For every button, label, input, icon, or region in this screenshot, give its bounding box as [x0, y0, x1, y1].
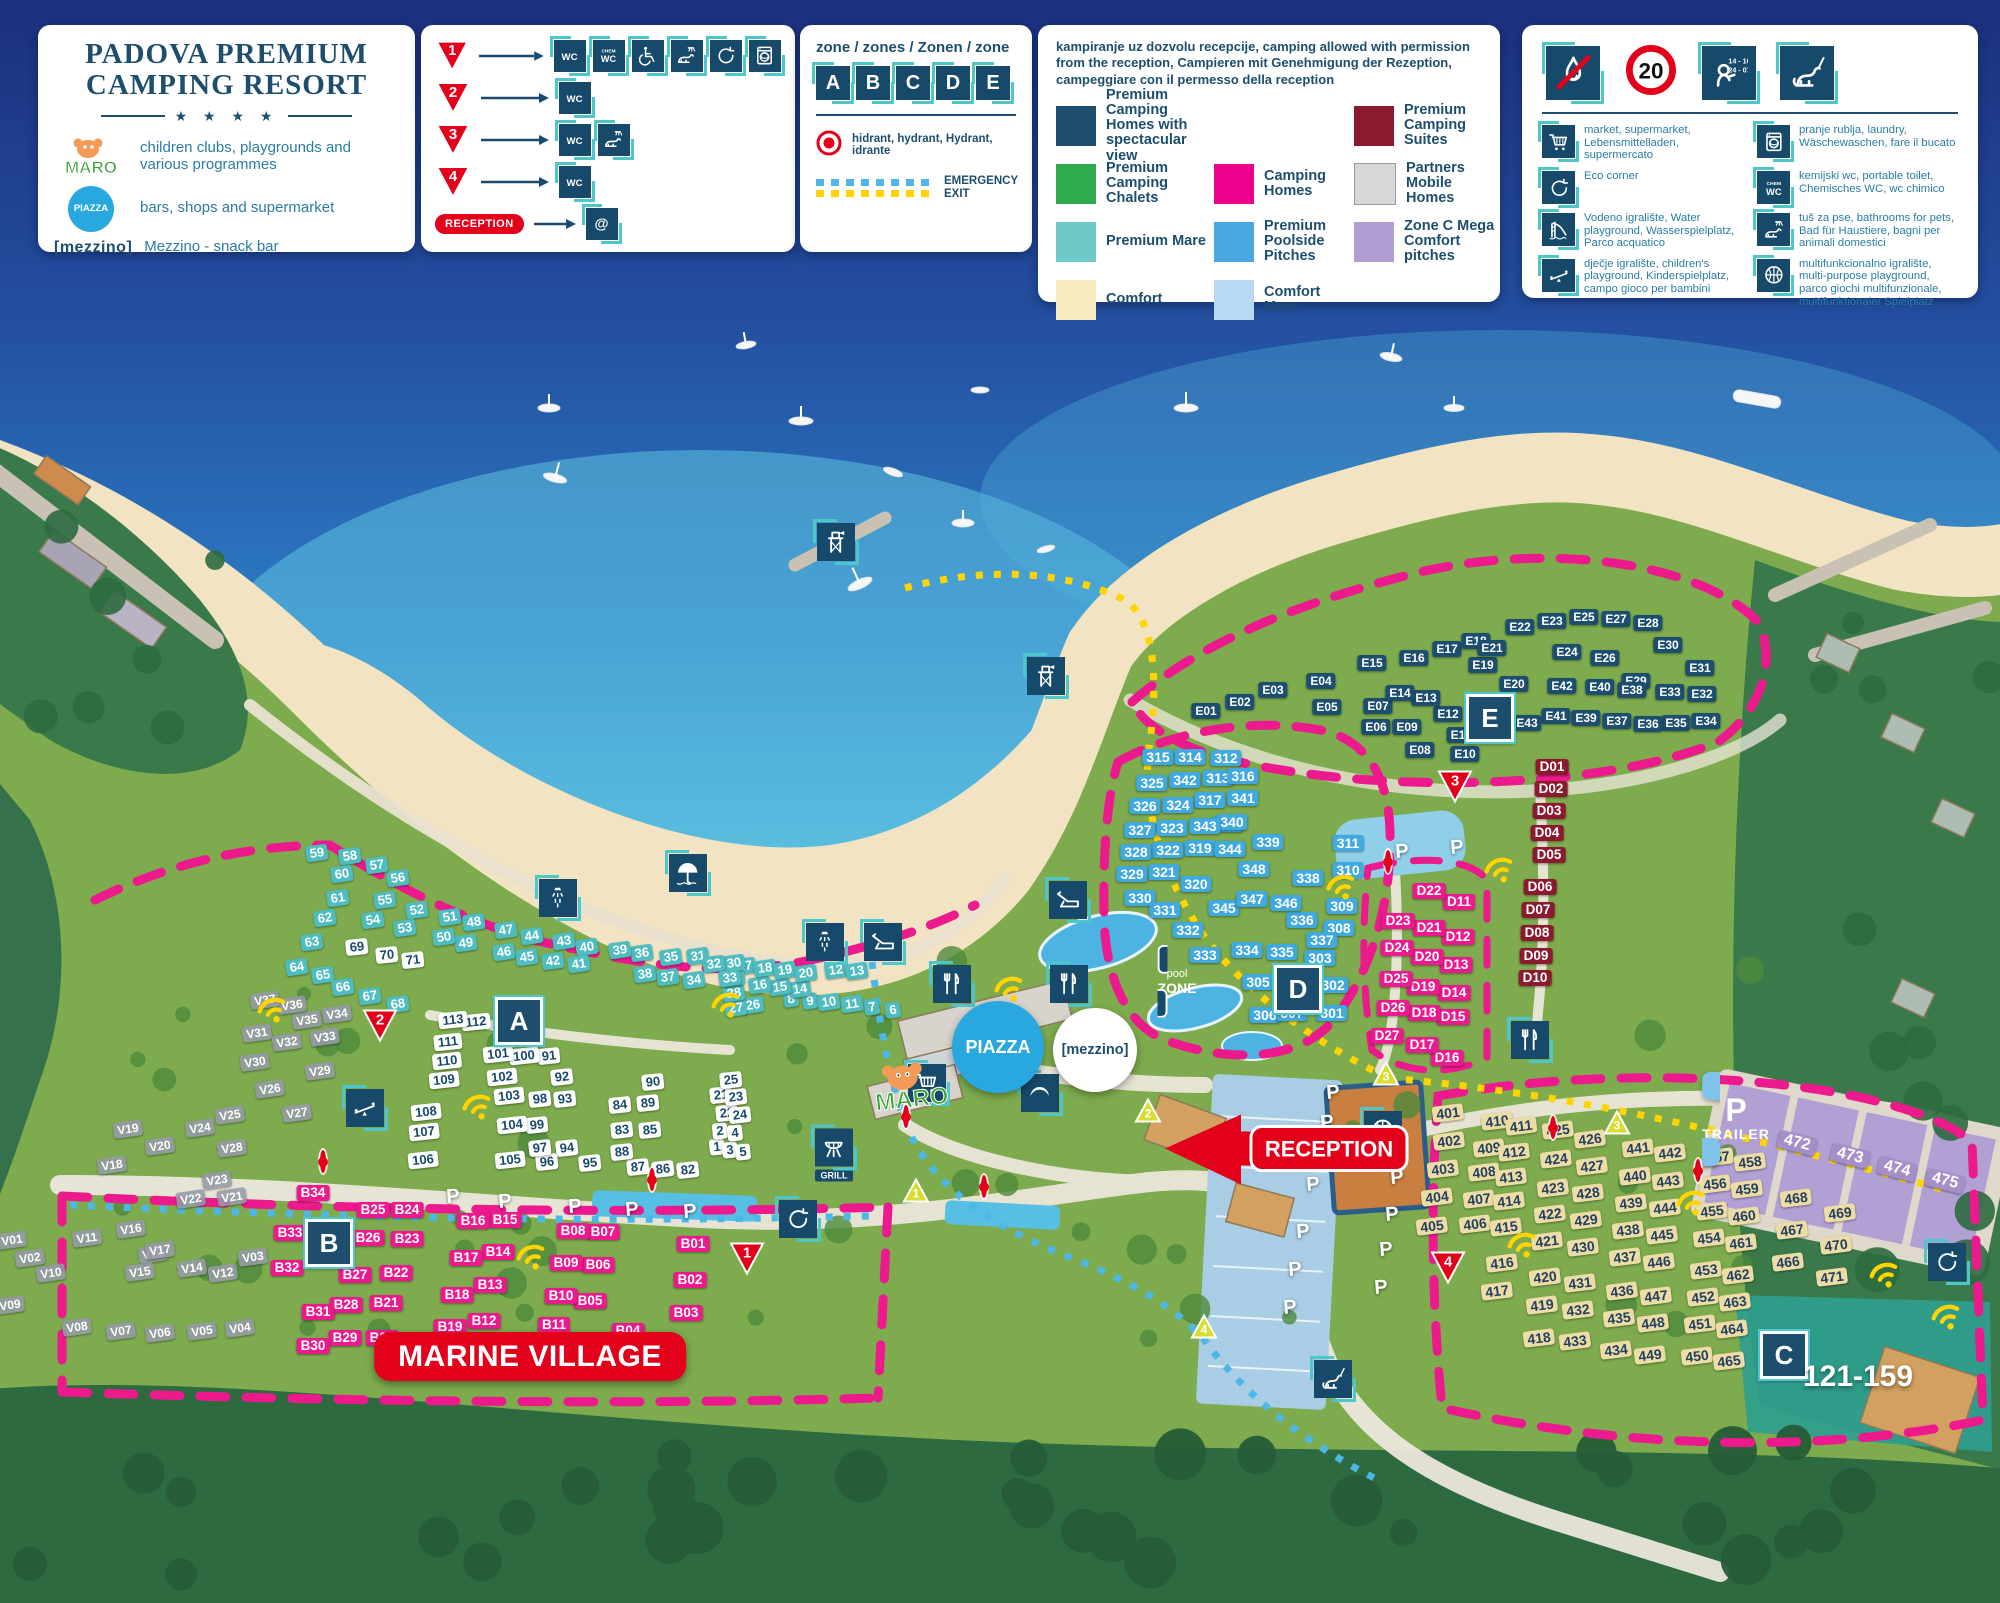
pitch-mare: 7 — [864, 999, 879, 1015]
rules-legend-item: dječje igralište, children's playground,… — [1542, 258, 1743, 309]
pitch-partners: V24 — [185, 1120, 214, 1136]
pitch-homes: B22 — [380, 1265, 413, 1281]
color-swatch — [1354, 163, 1396, 205]
svg-text:WC: WC — [567, 94, 583, 105]
pitch-mare: 42 — [542, 953, 564, 969]
pitch-view: E33 — [1655, 684, 1684, 700]
pitch-comfort: 463 — [1719, 1294, 1750, 1310]
svg-text:WC: WC — [562, 52, 578, 63]
pitch-comfort: 422 — [1534, 1206, 1565, 1222]
pitch-mare: 57 — [366, 857, 388, 873]
pitch-white: 24 — [729, 1107, 751, 1123]
facility-dogleash — [1314, 1360, 1352, 1398]
pitch-poolside: 347 — [1236, 891, 1267, 907]
hydrant-icon — [1695, 1159, 1701, 1182]
pitch-mega: 473 — [1831, 1147, 1870, 1165]
pitch-view: E04 — [1306, 673, 1335, 689]
pitch-mare: 6 — [885, 1002, 900, 1018]
route-marker-icon: 3 — [1372, 1061, 1400, 1087]
wifi-hotspot — [1482, 855, 1518, 892]
route-marker-3: 3 — [1372, 1061, 1400, 1092]
svg-text:3: 3 — [1614, 1119, 1621, 1133]
mezzino-icon: [mezzino] — [54, 239, 132, 257]
pitch-view: E39 — [1571, 710, 1600, 726]
zone-letter-A: A — [816, 66, 850, 100]
rules-label: Vodeno igralište, Water playground, Wass… — [1584, 212, 1743, 250]
chemwc-icon: CHEMWC — [593, 40, 625, 72]
pitch-white: 84 — [609, 1097, 631, 1113]
pitch-white: 107 — [409, 1124, 439, 1140]
wifi-icon — [1477, 849, 1522, 892]
pitch-homes: B01 — [677, 1236, 710, 1252]
pitch-white: 5 — [735, 1144, 750, 1160]
hydrant-icon — [816, 130, 842, 159]
quiet-icon: 14 - 1624 - 07 — [1702, 46, 1756, 100]
maro-logo: MARO — [865, 1055, 957, 1127]
pitch-white: 83 — [611, 1122, 633, 1138]
color-swatch — [1056, 164, 1096, 204]
pitch-comfort: 418 — [1523, 1330, 1554, 1346]
pitch-white: 98 — [529, 1091, 551, 1107]
wc-icon: WC — [559, 166, 591, 198]
pitch-comfort: 405 — [1416, 1218, 1447, 1234]
pitch-white: 82 — [677, 1162, 699, 1178]
pitch-partners: V22 — [176, 1191, 205, 1207]
pitch-view: E06 — [1361, 719, 1390, 735]
pitch-view: E36 — [1633, 716, 1662, 732]
pitch-partners: V32 — [272, 1034, 301, 1050]
pitch-mare: 61 — [327, 890, 349, 906]
pitch-mare: 60 — [331, 866, 353, 882]
rules-label: pranje rublja, laundry, Wäschewaschen, f… — [1799, 124, 1958, 149]
wifi-icon — [1500, 1224, 1545, 1267]
pitch-view: E43 — [1512, 715, 1541, 731]
pitch-partners: V03 — [238, 1249, 267, 1265]
pitch-partners: V18 — [97, 1157, 126, 1173]
rules-label: dječje igralište, children's playground,… — [1584, 258, 1743, 296]
parking-spot: P — [683, 1201, 696, 1224]
pitch-homes: B25 — [357, 1202, 390, 1218]
emergency-exit-legend: EMERGENCYEXIT — [816, 175, 1016, 201]
svg-text:4: 4 — [1201, 1323, 1208, 1337]
wifi-icon — [1924, 1296, 1969, 1339]
pitch-view: E01 — [1191, 703, 1220, 719]
pitch-white: 106 — [408, 1152, 438, 1168]
pitch-poolside: 342 — [1169, 772, 1200, 788]
pitch-mega: 472 — [1778, 1134, 1817, 1152]
wifi-hotspot — [1324, 872, 1360, 909]
pitch-poolside: 327 — [1124, 822, 1155, 838]
rules-label: kemijski wc, portable toilet, Chemisches… — [1799, 170, 1958, 195]
pitch-mare: 14 — [789, 981, 811, 997]
zone-badge-D: D — [1274, 965, 1322, 1013]
wifi-hotspot — [1505, 1230, 1541, 1267]
pitch-white: 102 — [487, 1069, 517, 1085]
accommodation-legend-item: Premium Camping Suites — [1354, 100, 1504, 152]
pitch-homes: D20 — [1411, 949, 1444, 965]
shower-icon — [539, 879, 577, 917]
laundry-icon — [1757, 125, 1790, 158]
pitch-mare: 20 — [795, 965, 817, 981]
pitch-poolside: 316 — [1227, 768, 1258, 784]
hydrant — [1550, 1119, 1556, 1137]
reception-legend-row: RECEPTION@ — [435, 203, 781, 245]
pitch-white: 100 — [509, 1048, 539, 1064]
pitch-view: E13 — [1411, 690, 1440, 706]
pitch-view: E34 — [1691, 713, 1720, 729]
pitch-mare: 10 — [818, 994, 840, 1010]
wifi-icon — [250, 989, 295, 1032]
pitch-poolside: 326 — [1129, 798, 1160, 814]
hydrant-icon — [981, 1175, 987, 1198]
pitch-white: 89 — [637, 1095, 659, 1111]
rules-legend-item: tuš za pse, bathrooms for pets, Bad für … — [1757, 212, 1958, 250]
title-panel-item: PIAZZAbars, shops and supermarket — [54, 186, 399, 232]
pitch-homes: B33 — [274, 1225, 307, 1241]
pitch-poolside: 311 — [1333, 835, 1364, 851]
svg-text:WC: WC — [601, 55, 617, 65]
wc-icon: WC — [559, 124, 591, 156]
facilities-legend-panel: 1WCCHEMWC2WC3WC4WCRECEPTION@ — [421, 25, 795, 252]
pitch-comfort: 451 — [1684, 1316, 1715, 1332]
umbrella-icon — [669, 854, 707, 892]
parking-spot: P — [1385, 1204, 1398, 1227]
pitch-homes: B13 — [474, 1277, 507, 1293]
hydrant-icon — [1385, 850, 1391, 873]
facility-row: 1WCCHEMWC — [435, 35, 781, 77]
pitch-homes: D13 — [1440, 957, 1473, 973]
accommodation-legend-item: Zone C Mega Comfort pitches — [1354, 216, 1504, 268]
pitch-suites: D01 — [1536, 759, 1569, 775]
pitch-white: 91 — [538, 1048, 560, 1064]
pitch-mare: 67 — [359, 988, 381, 1004]
accommodation-legend-item: Comfort Mare — [1214, 274, 1354, 326]
pitch-mare: 15 — [769, 979, 791, 995]
pitch-comfort: 434 — [1600, 1342, 1631, 1358]
hydrant — [320, 1153, 326, 1171]
red-triangle-2: 2 — [362, 1009, 398, 1043]
pitch-homes: D23 — [1382, 913, 1415, 929]
wifi-hotspot — [460, 1092, 496, 1129]
accommodation-legend-item: Premium Mare — [1056, 216, 1214, 268]
restaurant-icon — [933, 965, 971, 1003]
zones-legend-panel: zone / zones / Zonen / zone ABCDE hidran… — [800, 25, 1032, 252]
route-marker-3: 3 — [1603, 1110, 1631, 1141]
recycle-icon — [1928, 1243, 1966, 1281]
pitch-mare: 46 — [493, 944, 515, 960]
pitch-comfort: 433 — [1559, 1333, 1590, 1349]
facility-lifeguard — [1027, 657, 1065, 695]
pitch-mare: 16 — [749, 977, 771, 993]
pitch-mare: 36 — [631, 945, 653, 961]
grill-icon — [815, 1129, 853, 1167]
hydrant-icon — [649, 1168, 655, 1191]
pitch-white: 86 — [652, 1161, 674, 1177]
wc-icon: WC — [559, 82, 591, 114]
sanitary-point-4: 4 — [1430, 1251, 1466, 1290]
rules-legend-item: multifunkcionalno igralište, multi-purpo… — [1757, 258, 1958, 309]
pitch-view: E42 — [1547, 678, 1576, 694]
wc-icon: WC — [554, 40, 586, 72]
pitch-comfort: 401 — [1432, 1105, 1463, 1121]
pitch-homes: D11 — [1443, 894, 1475, 910]
pitch-partners: V25 — [215, 1107, 244, 1123]
parking-spot: P — [1374, 1277, 1387, 1300]
pitch-homes: B26 — [352, 1230, 385, 1246]
zone-badge-A: A — [495, 997, 543, 1045]
pitch-view: E12 — [1433, 706, 1462, 722]
pitch-homes: B12 — [468, 1313, 501, 1329]
pitch-view: E09 — [1392, 719, 1421, 735]
pitch-white: 99 — [526, 1117, 548, 1133]
facility-restaurant — [1511, 1021, 1549, 1059]
reception-arrow: RECEPTION — [1163, 1112, 1413, 1191]
camping-permission-note: kampiranje uz dozvolu recepcije, camping… — [1056, 39, 1482, 88]
pitch-white: 111 — [434, 1034, 462, 1050]
pitch-comfort: 447 — [1640, 1288, 1671, 1304]
hydrant — [981, 1178, 987, 1196]
recycle-icon — [779, 1200, 817, 1238]
pitch-poolside: 323 — [1156, 820, 1187, 836]
pitch-mare: 59 — [306, 845, 328, 861]
svg-text:2: 2 — [1145, 1107, 1152, 1121]
parking-spot: P — [1296, 1221, 1309, 1244]
pitch-comfort: 471 — [1816, 1269, 1847, 1285]
red-triangle-1: 1 — [729, 1242, 765, 1276]
pitch-poolside: 337 — [1306, 932, 1337, 948]
pitch-mare: 41 — [568, 956, 590, 972]
pitch-partners: V02 — [15, 1250, 44, 1266]
pitch-mare: 52 — [406, 902, 428, 918]
arrow-icon — [532, 218, 578, 230]
pitch-white: 113 — [439, 1012, 468, 1028]
pitch-view: E20 — [1499, 676, 1528, 692]
pitch-white: 108 — [411, 1104, 441, 1120]
pool-zone-sign: poolZONE — [1158, 951, 1197, 1013]
pitch-comfort: 403 — [1427, 1161, 1458, 1177]
zone-badge-B: B — [305, 1219, 353, 1267]
pitch-homes: B24 — [391, 1202, 424, 1218]
pitch-poolside: 312 — [1210, 750, 1241, 766]
waterplay-icon — [1542, 213, 1575, 246]
svg-text:WC: WC — [567, 178, 583, 189]
pitch-view: E37 — [1602, 713, 1631, 729]
pitch-homes: B06 — [582, 1257, 615, 1273]
pitch-comfort: 406 — [1459, 1216, 1490, 1232]
seesaw-icon — [346, 1089, 384, 1127]
pitch-view: E05 — [1312, 699, 1341, 715]
pitch-poolside: 348 — [1238, 861, 1269, 877]
svg-text:WC: WC — [567, 136, 583, 147]
pitch-homes: B05 — [574, 1293, 607, 1309]
color-swatch — [1354, 106, 1394, 146]
pitch-poolside: 343 — [1189, 818, 1220, 834]
parking-spot: P — [625, 1199, 638, 1222]
pitch-mega: 474 — [1878, 1160, 1917, 1178]
pitch-suites: D02 — [1535, 781, 1568, 797]
facility-row: 2WC — [435, 77, 781, 119]
pitch-view: E32 — [1687, 686, 1716, 702]
restaurant-icon — [1050, 965, 1088, 1003]
pitch-mare: 11 — [841, 996, 863, 1012]
svg-text:MARO: MARO — [874, 1082, 950, 1117]
pitch-mare: 40 — [576, 939, 598, 955]
parking-spot: P — [1379, 1239, 1392, 1262]
route-marker-4: 4 — [1190, 1314, 1218, 1345]
pitch-mare: 48 — [463, 914, 485, 930]
pitch-mare: 44 — [521, 928, 543, 944]
pitch-comfort: 404 — [1421, 1189, 1452, 1205]
pitch-comfort: 452 — [1687, 1289, 1718, 1305]
pitch-homes: B31 — [302, 1304, 335, 1320]
pitch-partners: V15 — [125, 1264, 154, 1280]
route-marker-1: 1 — [902, 1178, 930, 1209]
route-marker-icon: 3 — [1603, 1110, 1631, 1136]
hydrant — [649, 1171, 655, 1189]
pitch-partners: V30 — [240, 1054, 269, 1070]
pitch-view: E31 — [1685, 660, 1714, 676]
red-triangle-3: 3 — [435, 123, 471, 157]
color-swatch — [1056, 106, 1096, 146]
pitch-homes: B18 — [441, 1287, 474, 1303]
zone-letter-D: D — [936, 66, 970, 100]
pitch-white: 23 — [725, 1089, 747, 1105]
zones-heading: zone / zones / Zonen / zone — [816, 39, 1016, 56]
wifi-hotspot — [1674, 1188, 1710, 1225]
pitch-comfort: 441 — [1622, 1140, 1653, 1156]
pitch-mare: 39 — [609, 942, 631, 958]
pitch-partners: V27 — [282, 1105, 311, 1121]
red-triangle-1: 1 — [435, 39, 469, 73]
facility-umbrella — [669, 854, 707, 892]
rules-legend-item: pranje rublja, laundry, Wäschewaschen, f… — [1757, 124, 1958, 162]
accommodation-legend-panel: kampiranje uz dozvolu recepcije, camping… — [1038, 25, 1500, 302]
pitch-mare: 37 — [657, 969, 679, 985]
pitch-white: 90 — [642, 1074, 664, 1090]
pitch-poolside: 303 — [1304, 950, 1335, 966]
pitch-comfort: 430 — [1567, 1239, 1598, 1255]
pitch-homes: B03 — [670, 1305, 703, 1321]
pitch-view: E41 — [1541, 708, 1570, 724]
sanitary-point-2: 2 — [362, 1009, 398, 1048]
pitch-white: 94 — [556, 1140, 578, 1156]
pitch-poolside: 336 — [1286, 912, 1317, 928]
pitch-view: E35 — [1661, 715, 1690, 731]
pitch-mare: 63 — [301, 934, 323, 950]
pitch-suites: D07 — [1522, 902, 1555, 918]
pitch-view: E38 — [1617, 682, 1646, 698]
pitch-poolside: 332 — [1172, 922, 1203, 938]
accommodation-label: Comfort — [1106, 292, 1162, 307]
pitch-comfort: 468 — [1780, 1190, 1811, 1206]
pitch-homes: B15 — [489, 1212, 522, 1228]
pitch-suites: D03 — [1533, 803, 1566, 819]
pitch-comfort: 437 — [1609, 1249, 1640, 1265]
red-triangle-2: 2 — [435, 81, 471, 115]
svg-text:2: 2 — [449, 84, 457, 101]
svg-text:@: @ — [595, 217, 609, 233]
zone-letter-E: E — [976, 66, 1010, 100]
wifi-hotspot — [1867, 1260, 1903, 1297]
pitch-partners: V08 — [62, 1319, 91, 1335]
svg-text:3: 3 — [1383, 1070, 1390, 1084]
pitch-poolside: 315 — [1142, 749, 1173, 765]
pitch-homes: B28 — [330, 1297, 363, 1313]
pitch-comfort: 402 — [1433, 1133, 1464, 1149]
pitch-mare: 49 — [455, 935, 477, 951]
pitch-homes: B07 — [587, 1224, 620, 1240]
accommodation-label: Partners Mobile Homes — [1406, 161, 1504, 207]
pitch-homes: D15 — [1437, 1009, 1470, 1025]
pitch-comfort: 466 — [1772, 1254, 1803, 1270]
pitch-comfort: 440 — [1619, 1168, 1650, 1184]
pitch-poolside: 319 — [1184, 840, 1215, 856]
color-swatch — [1056, 222, 1096, 262]
pitch-suites: D06 — [1524, 879, 1557, 895]
pitch-comfort: 460 — [1728, 1208, 1759, 1224]
zone-badge-E: E — [1466, 694, 1514, 742]
zone-letter-C: C — [896, 66, 930, 100]
trailer-parking-sign: PTRAILER — [1702, 1076, 1770, 1160]
color-swatch — [1214, 164, 1254, 204]
pitch-partners: V06 — [145, 1325, 174, 1341]
route-marker-icon: 4 — [1190, 1314, 1218, 1340]
pitch-white: 104 — [497, 1117, 527, 1133]
pitch-view: E26 — [1590, 650, 1619, 666]
pitch-homes: B30 — [297, 1338, 330, 1354]
pitch-homes: D27 — [1371, 1028, 1404, 1044]
facility-shower — [539, 879, 577, 917]
svg-text:1: 1 — [743, 1245, 751, 1262]
pitch-white: 109 — [429, 1072, 459, 1088]
pitch-white: 69 — [346, 939, 368, 955]
pitch-mare: 56 — [387, 870, 409, 886]
title-item-label: Mezzino - snack bar — [144, 239, 278, 256]
pitch-view: E10 — [1450, 746, 1479, 762]
pitch-comfort: 454 — [1693, 1230, 1724, 1246]
pitch-comfort: 414 — [1493, 1193, 1524, 1209]
rules-label: market, supermarket, Lebensmittelladen, … — [1584, 124, 1743, 162]
pitch-view: E25 — [1569, 609, 1598, 625]
pitch-poolside: 325 — [1136, 775, 1167, 791]
pitch-comfort: 448 — [1637, 1315, 1668, 1331]
pitch-comfort: 413 — [1495, 1169, 1526, 1185]
shower-icon — [806, 923, 844, 961]
star-rating: ★ ★ ★ ★ — [54, 108, 399, 125]
facility-recycle — [779, 1200, 817, 1238]
facility-restaurant — [1050, 965, 1088, 1003]
pitch-poolside: 314 — [1174, 749, 1205, 765]
pitch-poolside: 344 — [1214, 841, 1245, 857]
sanitary-point-1: 1 — [729, 1242, 765, 1281]
wifi-icon — [509, 1236, 554, 1279]
svg-text:24 - 07: 24 - 07 — [1728, 67, 1748, 75]
pitch-comfort: 427 — [1576, 1158, 1607, 1174]
pitch-comfort: 450 — [1681, 1348, 1712, 1364]
pitch-poolside: 339 — [1252, 834, 1283, 850]
pitch-view: E27 — [1601, 611, 1630, 627]
nofire-icon — [1546, 46, 1600, 100]
arrow-icon — [479, 134, 551, 146]
zone-c-range-label: 121-159 — [1803, 1360, 1913, 1394]
pitch-poolside: 345 — [1208, 900, 1239, 916]
pitch-partners: V34 — [322, 1006, 351, 1022]
pitch-white: 88 — [611, 1144, 633, 1160]
pitch-poolside: 335 — [1266, 944, 1297, 960]
pitch-comfort: 459 — [1731, 1181, 1762, 1197]
pitch-partners: V29 — [305, 1063, 334, 1079]
recycle-icon — [1542, 171, 1575, 204]
